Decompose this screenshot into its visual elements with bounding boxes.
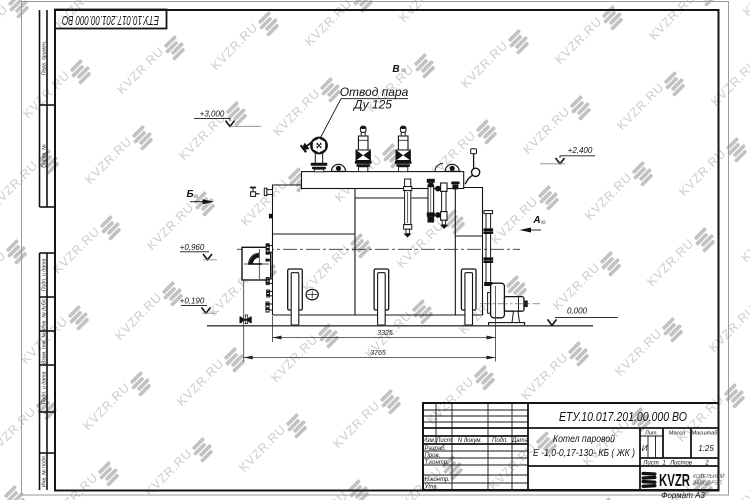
svg-text:Подп.: Подп. <box>492 438 508 444</box>
svg-text:Е -1,0-0,17-130- КБ ( ЖК ): Е -1,0-0,17-130- КБ ( ЖК ) <box>533 447 635 459</box>
svg-text:Лист: Лист <box>435 438 451 444</box>
svg-text:0,000: 0,000 <box>567 306 588 315</box>
svg-text:+0,190: +0,190 <box>180 297 205 306</box>
svg-text:Разраб.: Разраб. <box>425 446 447 452</box>
svg-text:Подп. и дата: Подп. и дата <box>42 372 48 405</box>
svg-text:Н.контр.: Н.контр. <box>425 477 450 483</box>
svg-text:N докум.: N докум. <box>458 438 482 444</box>
svg-text:КОТЕЛЬНЫЙ: КОТЕЛЬНЫЙ <box>693 472 725 480</box>
svg-text:Утв.: Утв. <box>424 485 439 491</box>
svg-text:1:25: 1:25 <box>698 444 714 453</box>
svg-text:Масштаб: Масштаб <box>692 431 719 437</box>
svg-text:Подп. и дата: Подп. и дата <box>42 259 48 292</box>
svg-text:+3,000: +3,000 <box>200 110 225 119</box>
svg-text:Т.контр.: Т.контр. <box>425 460 449 466</box>
svg-text:В: В <box>392 64 399 75</box>
svg-text:2: 2 <box>704 461 709 467</box>
svg-text:Масса: Масса <box>669 431 685 437</box>
svg-text:ЕТУ.10.017.201.00.000 ВО: ЕТУ.10.017.201.00.000 ВО <box>559 410 687 424</box>
svg-text:Котел паровой: Котел паровой <box>553 433 615 445</box>
svg-text:Листов: Листов <box>669 461 692 467</box>
svg-text:Б: Б <box>186 189 193 200</box>
svg-text:Инв. № подл.: Инв. № подл. <box>42 455 48 487</box>
svg-text:3765: 3765 <box>370 350 386 357</box>
svg-text:Изм.: Изм. <box>423 438 436 444</box>
svg-text:Формат А3: Формат А3 <box>661 491 705 500</box>
svg-text:И: И <box>642 444 648 453</box>
svg-text:1: 1 <box>662 461 665 467</box>
svg-text:Ду 125: Ду 125 <box>352 98 392 112</box>
svg-text:KVZR: KVZR <box>659 470 690 490</box>
svg-text:Инв. № дубл.: Инв. № дубл. <box>42 298 48 330</box>
svg-text:Справ. №: Справ. № <box>42 144 48 168</box>
svg-text:ЕТУ.10.017.201.00.000 ВО: ЕТУ.10.017.201.00.000 ВО <box>62 13 159 27</box>
svg-text:Перв. примен.: Перв. примен. <box>42 41 48 75</box>
svg-text:Лист: Лист <box>642 461 658 467</box>
svg-text:3325: 3325 <box>377 330 393 337</box>
svg-text:А: А <box>532 215 540 226</box>
svg-text:+2,400: +2,400 <box>568 146 593 155</box>
svg-text:ЗАВОД РЭП: ЗАВОД РЭП <box>693 481 722 487</box>
svg-text:Пров.: Пров. <box>425 453 441 459</box>
svg-text:Лит.: Лит. <box>644 431 658 437</box>
svg-text:Взам. инв. №: Взам. инв. № <box>42 332 48 364</box>
svg-text:Дата: Дата <box>511 438 528 444</box>
svg-text:+0,960: +0,960 <box>180 243 205 252</box>
